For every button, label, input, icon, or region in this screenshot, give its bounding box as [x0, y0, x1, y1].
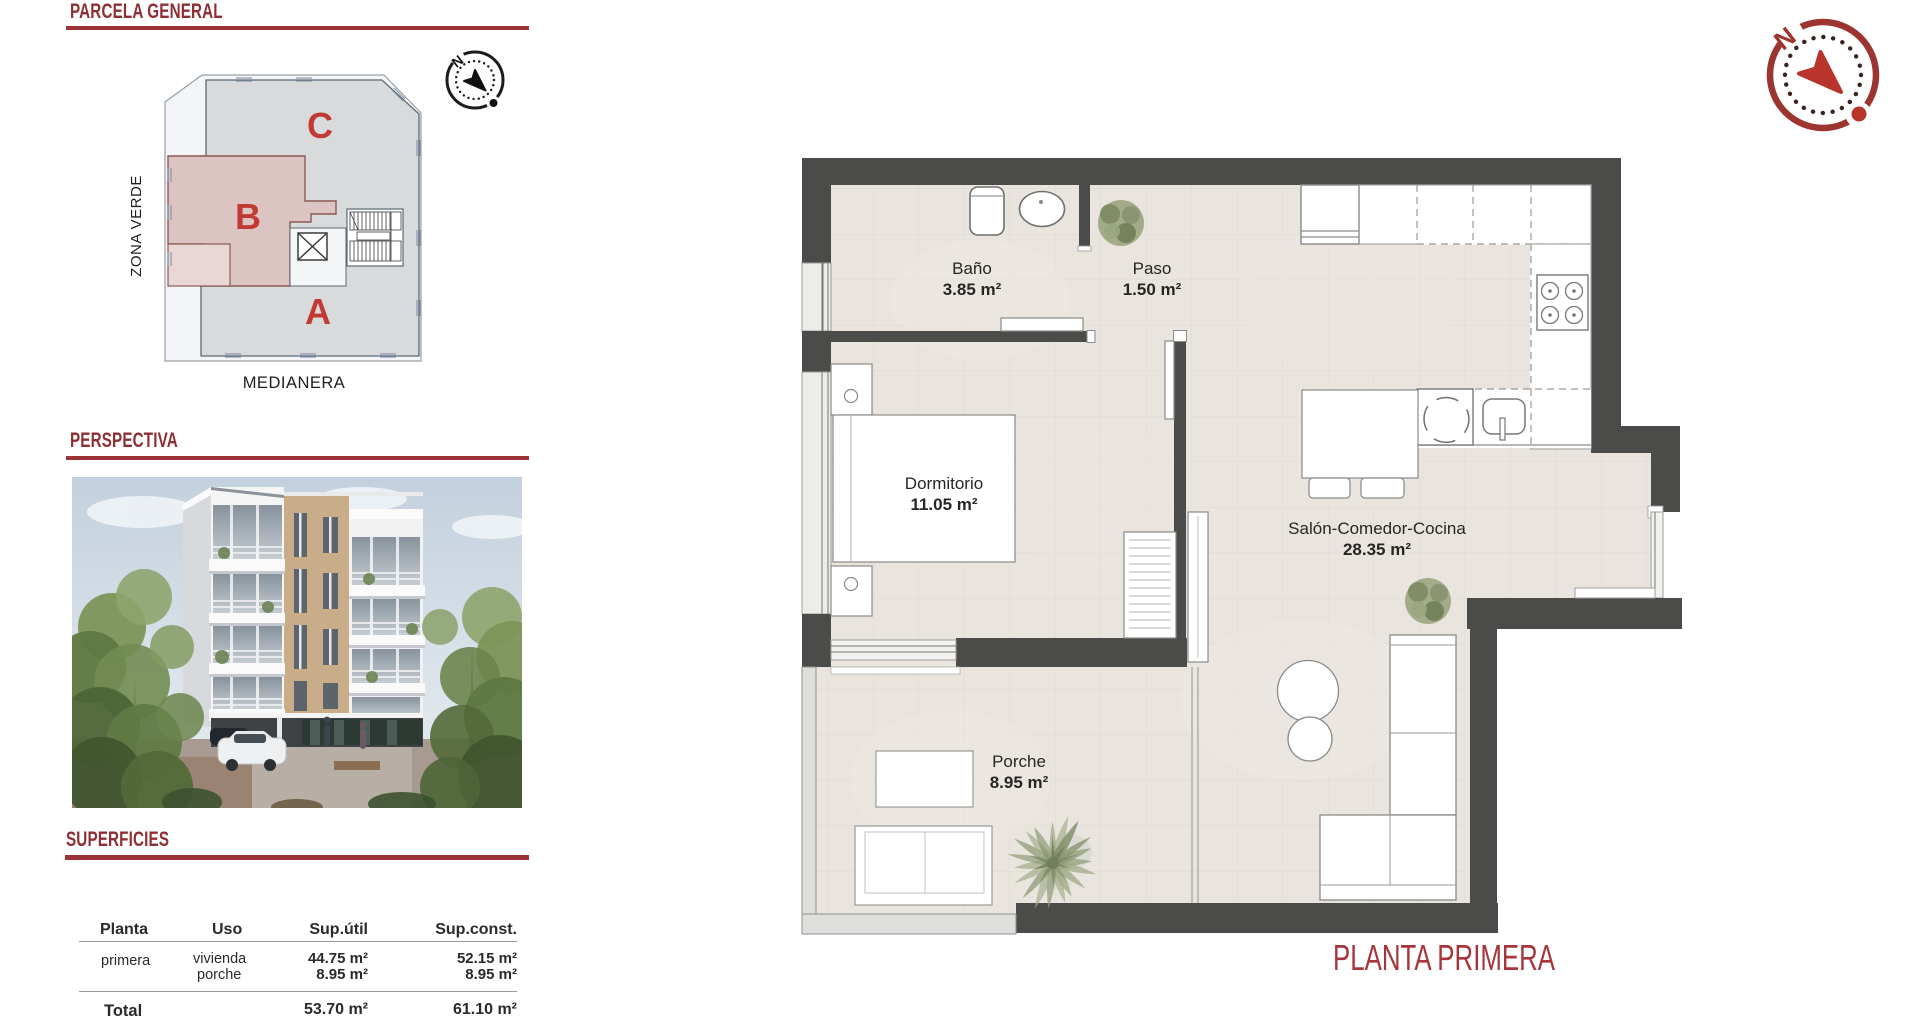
svg-text:B: B — [235, 196, 261, 237]
svg-text:C: C — [307, 105, 333, 146]
svg-text:11.05 m²: 11.05 m² — [910, 495, 977, 514]
svg-text:28.35 m²: 28.35 m² — [1343, 540, 1411, 559]
svg-text:ZONA VERDE: ZONA VERDE — [128, 175, 145, 277]
svg-text:Porche: Porche — [992, 752, 1046, 771]
svg-text:8.95 m²: 8.95 m² — [990, 773, 1049, 792]
svg-text:MEDIANERA: MEDIANERA — [243, 374, 346, 392]
svg-text:Salón-Comedor-Cocina: Salón-Comedor-Cocina — [1288, 519, 1466, 538]
svg-text:A: A — [305, 291, 331, 332]
svg-text:1.50 m²: 1.50 m² — [1123, 280, 1182, 299]
svg-text:3.85 m²: 3.85 m² — [943, 280, 1002, 299]
svg-text:PLANTA PRIMERA: PLANTA PRIMERA — [1333, 937, 1555, 978]
svg-text:Paso: Paso — [1133, 259, 1172, 278]
svg-text:Dormitorio: Dormitorio — [905, 474, 983, 493]
svg-text:Baño: Baño — [952, 259, 992, 278]
